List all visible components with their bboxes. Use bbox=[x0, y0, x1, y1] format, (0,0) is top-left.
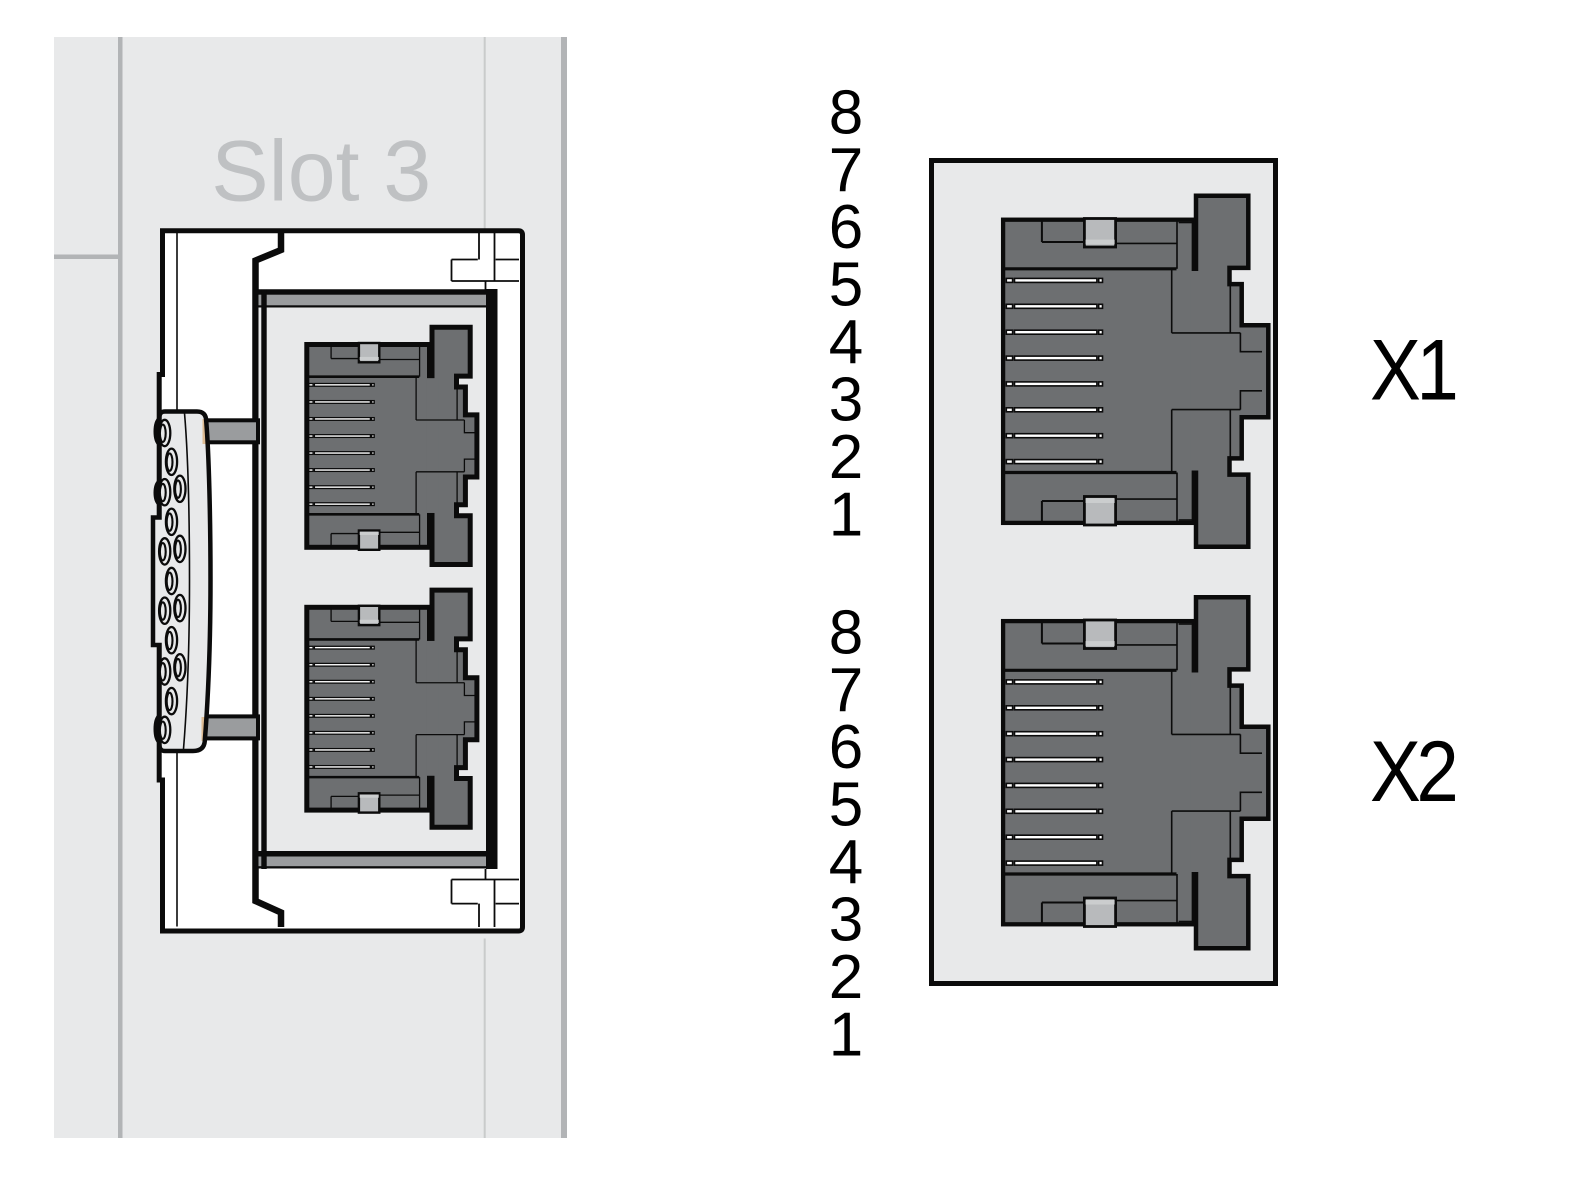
svg-text:X1: X1 bbox=[1370, 322, 1456, 418]
svg-text:Slot 3: Slot 3 bbox=[211, 124, 431, 220]
svg-text:1: 1 bbox=[829, 481, 863, 550]
svg-text:X2: X2 bbox=[1370, 724, 1456, 820]
svg-text:1: 1 bbox=[829, 1001, 863, 1070]
